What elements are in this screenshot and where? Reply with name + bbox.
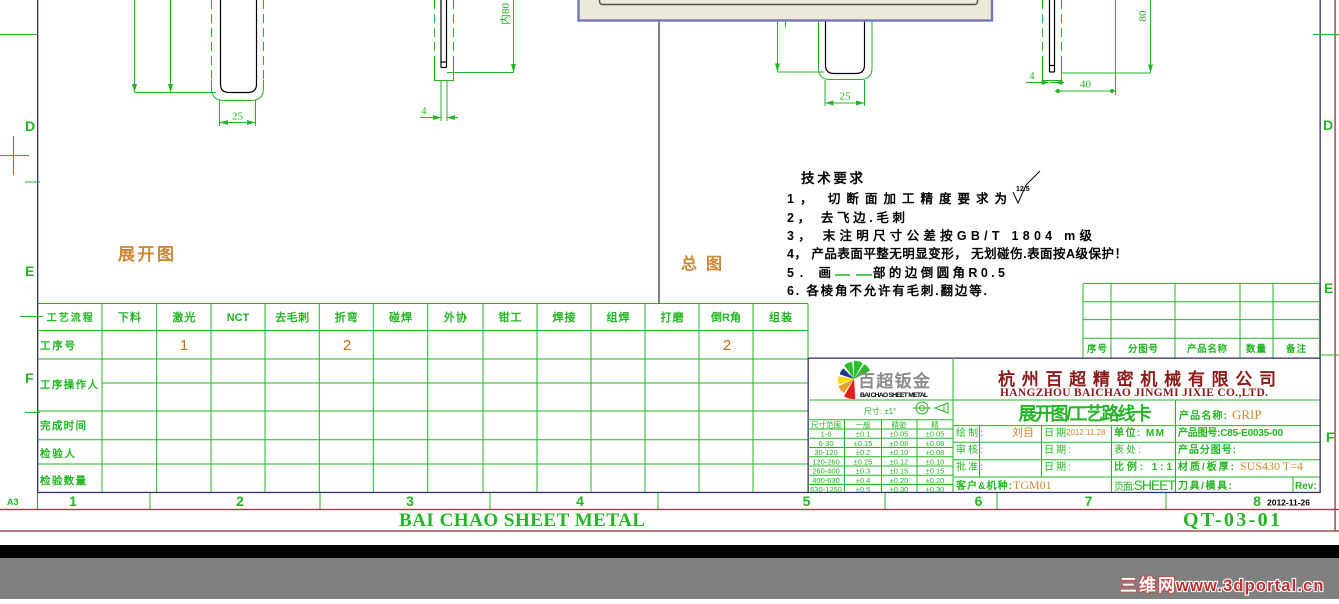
svg-text:去毛刺: 去毛刺 (275, 310, 309, 324)
svg-text:±0.15: ±0.15 (890, 467, 909, 476)
svg-text:25: 25 (840, 91, 852, 103)
svg-text:展开图/工艺路线卡: 展开图/工艺路线卡 (1019, 403, 1152, 424)
svg-text:下料: 下料 (118, 310, 141, 324)
svg-text:备注: 备注 (1285, 343, 1306, 355)
svg-text:12.5: 12.5 (1016, 186, 1030, 193)
svg-text:TGM01: TGM01 (1013, 478, 1052, 492)
svg-text:±0.15: ±0.15 (854, 439, 873, 448)
svg-text:GRIP: GRIP (1232, 407, 1262, 422)
svg-text:5. 画: 5. 画 (787, 266, 831, 280)
svg-text:2， 去飞边.毛刺: 2， 去飞边.毛刺 (787, 210, 905, 225)
svg-text:钳工: 钳工 (499, 310, 522, 324)
svg-text:±0.3: ±0.3 (856, 467, 871, 476)
svg-text:7: 7 (1085, 493, 1093, 509)
svg-text:展开图: 展开图 (118, 245, 174, 264)
svg-text:尺寸: ±1°: 尺寸: ±1° (864, 406, 896, 416)
svg-text:±0.30: ±0.30 (926, 485, 945, 494)
svg-text:百超钣金: 百超钣金 (858, 371, 931, 391)
svg-text:www.3dportal.cn: www.3dportal.cn (1175, 577, 1324, 595)
svg-text:4: 4 (1030, 71, 1035, 82)
svg-text:产品名称: 产品名称 (1187, 343, 1227, 355)
svg-text:焊接: 焊接 (553, 310, 576, 324)
svg-text:1-6: 1-6 (821, 430, 832, 439)
svg-text:精密: 精密 (892, 419, 907, 429)
svg-text:刘目: 刘目 (1012, 426, 1034, 439)
svg-text:SUS430 T=4: SUS430 T=4 (1240, 459, 1303, 473)
svg-text:±0.12: ±0.12 (890, 457, 909, 466)
svg-text:F: F (25, 370, 34, 386)
svg-text:400-630: 400-630 (812, 476, 840, 485)
svg-text:±0.2: ±0.2 (856, 448, 871, 457)
svg-text:±0.08: ±0.08 (890, 439, 909, 448)
svg-text:内80: 内80 (498, 3, 512, 25)
svg-text:4: 4 (576, 493, 584, 509)
svg-text:材质/板厚:: 材质/板厚: (1178, 460, 1234, 473)
svg-text:2012.11.28: 2012.11.28 (1066, 428, 1106, 437)
svg-text:工序号: 工序号 (40, 339, 75, 352)
svg-text:±0.4: ±0.4 (856, 476, 871, 485)
svg-text:序号: 序号 (1087, 343, 1107, 355)
svg-text:±0.08: ±0.08 (926, 448, 945, 457)
svg-text:F: F (1326, 429, 1335, 445)
svg-text:打磨: 打磨 (661, 310, 685, 324)
svg-text:BAI CHAO SHEET METAL: BAI CHAO SHEET METAL (860, 392, 928, 399)
svg-text:5: 5 (803, 493, 811, 509)
svg-text:3， 末注明尺寸公差按GB/T 1804 m级: 3， 末注明尺寸公差按GB/T 1804 m级 (787, 228, 1092, 243)
svg-text:2: 2 (723, 337, 731, 354)
svg-text:NCT: NCT (227, 312, 250, 324)
svg-text:检验数量: 检验数量 (40, 474, 87, 487)
svg-text:±0.05: ±0.05 (926, 430, 945, 439)
svg-text:±0.08: ±0.08 (926, 439, 945, 448)
svg-text:E: E (1324, 280, 1333, 296)
svg-text:精: 精 (931, 419, 939, 429)
svg-text:产品名称:: 产品名称: (1179, 409, 1227, 422)
svg-text:6-30: 6-30 (818, 439, 833, 448)
svg-text:产品图号:C85-E0035-00: 产品图号:C85-E0035-00 (1178, 426, 1283, 439)
svg-text:刀具/模具:: 刀具/模具: (1178, 479, 1232, 492)
svg-text:±0.10: ±0.10 (890, 448, 909, 457)
svg-text:QT-03-01: QT-03-01 (1183, 509, 1280, 531)
svg-text:3: 3 (406, 493, 414, 509)
svg-text:完成时间: 完成时间 (40, 419, 86, 432)
svg-text:尺寸范围: 尺寸范围 (811, 419, 841, 429)
svg-text:D: D (1323, 117, 1333, 133)
svg-text:2012-11-26: 2012-11-26 (1267, 498, 1310, 508)
svg-text:±0.15: ±0.15 (926, 467, 945, 476)
svg-text:HANGZHOU BAICHAO JINGMI JIXIE: HANGZHOU BAICHAO JINGMI JIXIE CO.,LTD. (1000, 387, 1268, 399)
svg-text:±0.30: ±0.30 (890, 485, 909, 494)
svg-text:2: 2 (236, 493, 244, 509)
svg-text:30-120: 30-120 (814, 448, 837, 457)
svg-text:检验人: 检验人 (40, 447, 76, 460)
svg-text:1: 1 (180, 337, 188, 354)
svg-text:6. 各棱角不允许有毛刺.翻边等.: 6. 各棱角不允许有毛刺.翻边等. (787, 283, 987, 298)
svg-text:A3: A3 (7, 497, 19, 507)
svg-text:组装: 组装 (769, 310, 792, 324)
svg-text:Rev:: Rev: (1295, 481, 1317, 492)
svg-text:1: 1 (69, 493, 77, 509)
svg-text:±0.1: ±0.1 (856, 430, 871, 439)
svg-text:D: D (25, 118, 35, 134)
svg-text:E: E (25, 263, 34, 279)
svg-text:±0.25: ±0.25 (854, 457, 873, 466)
svg-text:±0.20: ±0.20 (890, 476, 909, 485)
svg-text:客户&机种:: 客户&机种: (955, 479, 1012, 492)
svg-text:4: 4 (422, 106, 427, 117)
svg-text:BAI CHAO SHEET METAL: BAI CHAO SHEET METAL (399, 510, 645, 531)
svg-text:倒R角: 倒R角 (710, 310, 741, 324)
svg-text:260-400: 260-400 (812, 467, 840, 476)
svg-text:分图号: 分图号 (1128, 343, 1158, 355)
svg-text:部的边倒圆角R0.5: 部的边倒圆角R0.5 (873, 265, 1005, 280)
svg-text:2: 2 (343, 337, 351, 354)
svg-text:一般: 一般 (856, 419, 871, 429)
svg-text:6: 6 (975, 493, 983, 509)
svg-text:折弯: 折弯 (335, 310, 358, 324)
svg-text:120-260: 120-260 (812, 457, 840, 466)
svg-text:±0.20: ±0.20 (926, 476, 945, 485)
svg-text:三维网: 三维网 (1120, 575, 1177, 595)
svg-text:630-1250: 630-1250 (810, 485, 842, 494)
svg-text:8: 8 (1253, 493, 1261, 509)
svg-text:工序操作人: 工序操作人 (40, 378, 99, 391)
svg-text:±0.5: ±0.5 (856, 485, 871, 494)
svg-text:数量: 数量 (1245, 343, 1266, 355)
svg-text:±0.10: ±0.10 (926, 457, 945, 466)
svg-text:40: 40 (1080, 79, 1092, 91)
svg-text:组焊: 组焊 (607, 310, 630, 324)
svg-text:±0.05: ±0.05 (890, 430, 909, 439)
svg-text:单位: MM: 单位: MM (1114, 426, 1164, 439)
svg-text:激光: 激光 (172, 310, 195, 324)
svg-text:4， 产品表面平整无明显变形， 无划碰伤.表面按A级保护！: 4， 产品表面平整无明显变形， 无划碰伤.表面按A级保护！ (787, 246, 1127, 261)
svg-text:碰焊: 碰焊 (389, 310, 412, 324)
svg-text:产品分图号:: 产品分图号: (1178, 443, 1236, 456)
svg-text:80: 80 (1137, 10, 1149, 22)
svg-text:外协: 外协 (443, 310, 467, 324)
svg-text:25: 25 (232, 111, 244, 123)
